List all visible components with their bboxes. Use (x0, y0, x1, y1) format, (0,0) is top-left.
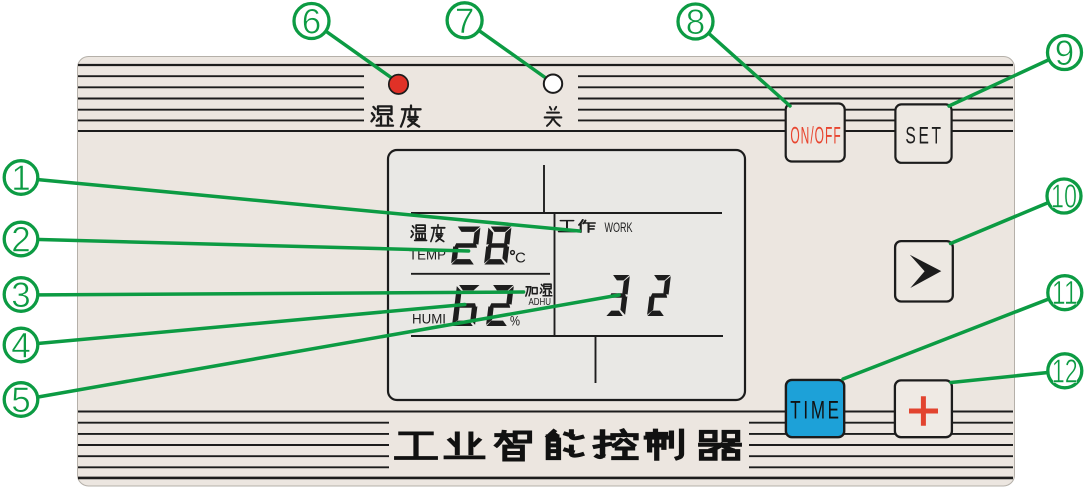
svg-text:C: C (515, 250, 526, 267)
svg-text:8: 8 (686, 3, 705, 42)
svg-text:11: 11 (1052, 274, 1078, 311)
svg-text:7: 7 (455, 2, 474, 41)
svg-text:SET: SET (905, 123, 943, 149)
svg-text:1: 1 (11, 159, 30, 198)
svg-text:HUMI: HUMI (412, 312, 446, 327)
svg-text:6: 6 (302, 3, 321, 42)
svg-text:10: 10 (1051, 178, 1077, 215)
svg-text:5: 5 (11, 381, 30, 420)
svg-text:4: 4 (11, 327, 30, 366)
svg-text:9: 9 (1055, 34, 1074, 73)
svg-text:ON/OFF: ON/OFF (790, 123, 841, 150)
svg-text:TIME: TIME (790, 396, 841, 424)
svg-text:WORK: WORK (605, 220, 633, 235)
svg-text:12: 12 (1052, 352, 1078, 389)
svg-text:3: 3 (11, 276, 30, 315)
svg-text:2: 2 (11, 221, 30, 260)
